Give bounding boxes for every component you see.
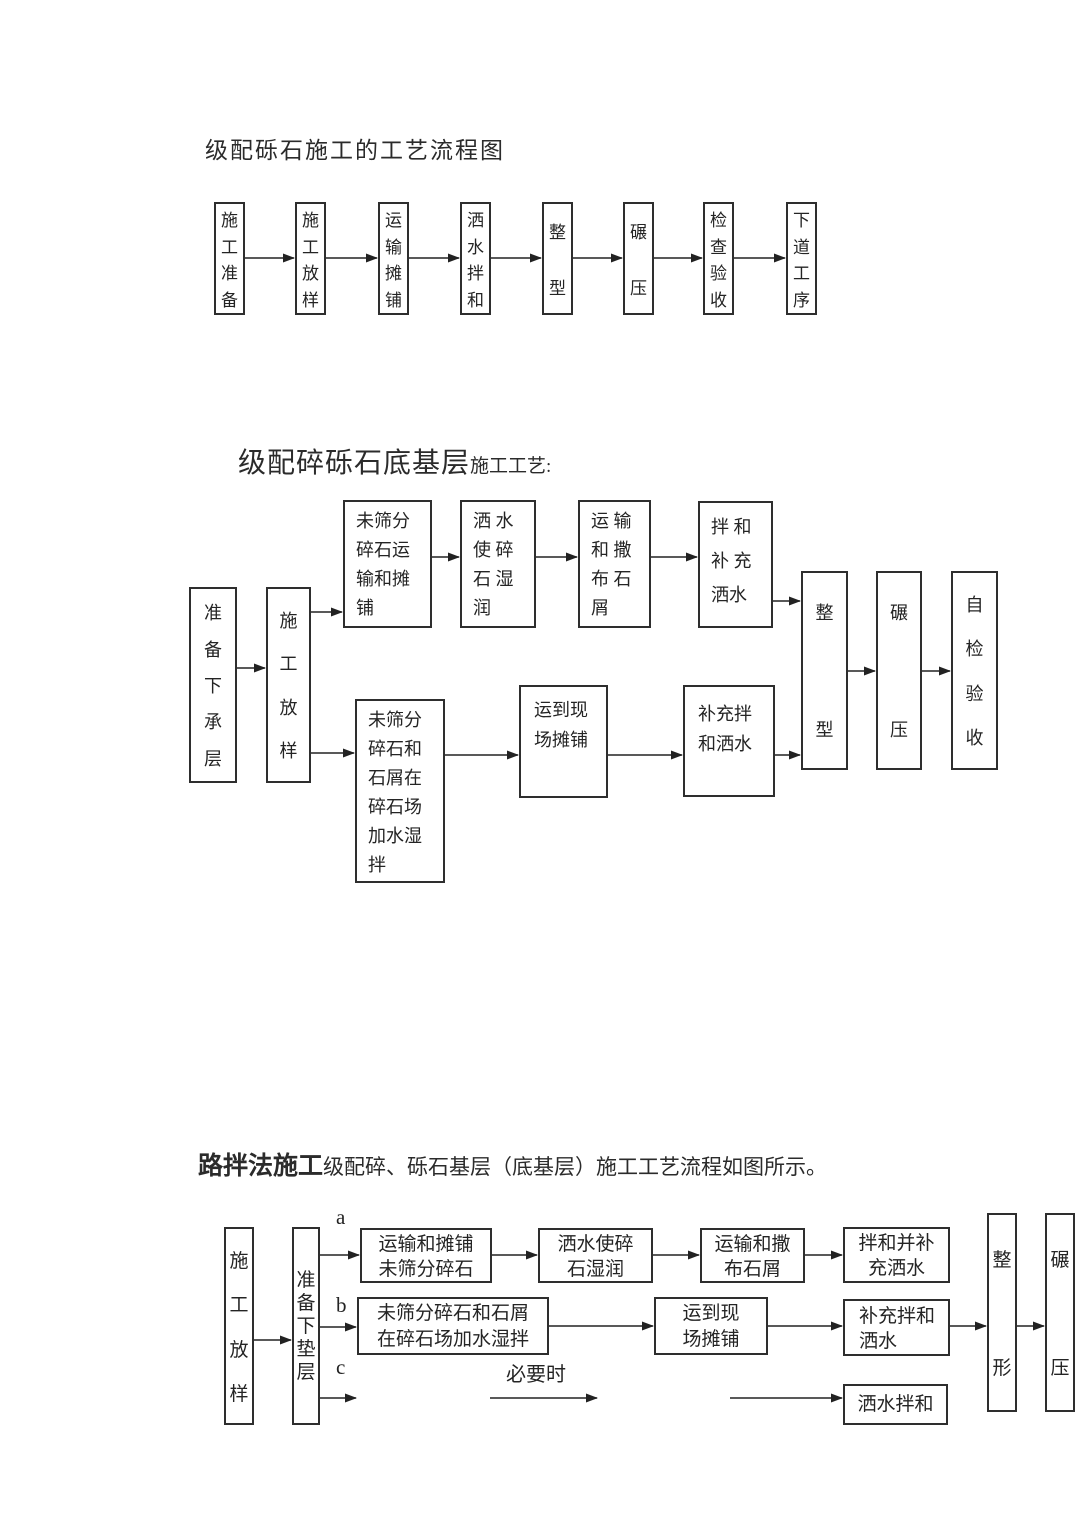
flow-node-char: 碾 — [1050, 1245, 1069, 1272]
flow-node-line: 未筛分碎石 — [362, 1257, 490, 1282]
flow-node-char: 层 — [296, 1361, 315, 1384]
flow-node: 补充拌和洒水 — [843, 1299, 950, 1356]
flow-node: 未筛分碎石和石屑在碎石场加水湿拌 — [357, 1297, 549, 1355]
flow-branch-label: b — [336, 1293, 347, 1318]
flow-node-char: 备 — [296, 1292, 315, 1315]
flow-node-line: 洒水使碎 — [540, 1232, 651, 1257]
flowchart-road-mix-method: 施工放样准备下垫层运输和摊铺未筛分碎石洒水使碎石湿润运输和撒布石屑拌和并补充洒水… — [0, 0, 1080, 1527]
document-page: 级配砾石施工的工艺流程图 级配碎砾石底基层施工工艺: 路拌法施工级配碎、砾石基层… — [0, 0, 1080, 1527]
flow-node-line: 充洒水 — [845, 1256, 948, 1281]
flow-node: 碾压 — [1045, 1213, 1075, 1412]
flow-branch-label: a — [336, 1205, 345, 1230]
flow-node-line: 石湿润 — [540, 1257, 651, 1282]
flow-node-line: 未筛分碎石和石屑 — [359, 1301, 547, 1327]
flow-node-char: 下 — [296, 1315, 315, 1338]
flow-node-char: 垫 — [296, 1338, 315, 1361]
flow-node-char: 样 — [229, 1379, 248, 1406]
flow-node: 运输和摊铺未筛分碎石 — [360, 1228, 492, 1283]
flow-node: 拌和并补充洒水 — [843, 1227, 950, 1283]
flow-node-line: 场摊铺 — [656, 1327, 766, 1353]
flow-branch-label: 必要时 — [506, 1358, 566, 1387]
flow-node-line: 补充拌和 — [859, 1304, 948, 1329]
flow-node-char: 工 — [229, 1290, 248, 1317]
flow-node: 运输和撒布石屑 — [700, 1228, 805, 1283]
flow-node: 整形 — [987, 1213, 1017, 1412]
flow-node-line: 运输和撒 — [702, 1232, 803, 1257]
flow-node-line: 运输和摊铺 — [362, 1232, 490, 1257]
flow-node: 施工放样 — [224, 1227, 254, 1425]
flow-node: 准备下垫层 — [292, 1227, 320, 1425]
flow-node: 运到现场摊铺 — [654, 1297, 768, 1355]
flow-node-char: 压 — [1050, 1353, 1069, 1380]
flow-node-line: 洒水 — [859, 1329, 948, 1354]
flow-node-line: 拌和并补 — [845, 1231, 948, 1256]
flow-node: 洒水使碎石湿润 — [538, 1228, 653, 1283]
flow-node-char: 放 — [229, 1335, 248, 1362]
flow-node-char: 施 — [229, 1246, 248, 1273]
flow-branch-label: c — [336, 1355, 345, 1380]
flow-node-char: 准 — [296, 1269, 315, 1292]
flow-node-line: 在碎石场加水湿拌 — [359, 1327, 547, 1353]
flow-node-line: 布石屑 — [702, 1257, 803, 1282]
flow-node: 洒水拌和 — [843, 1384, 948, 1425]
flow-node-line: 运到现 — [656, 1301, 766, 1327]
flow-node-line: 洒水拌和 — [845, 1392, 946, 1417]
flow-node-char: 整 — [992, 1245, 1011, 1272]
flow-node-char: 形 — [992, 1353, 1011, 1380]
